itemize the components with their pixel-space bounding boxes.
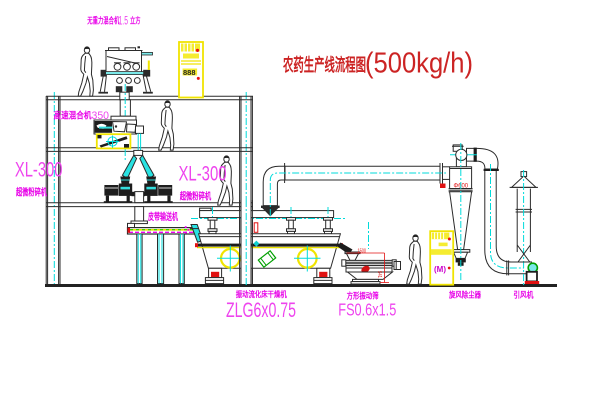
svg-text:(500kg/h): (500kg/h)	[365, 48, 473, 80]
svg-text:立方: 立方	[130, 16, 141, 26]
svg-text:(M): (M)	[434, 265, 446, 274]
svg-text:XL-300: XL-300	[179, 163, 227, 186]
svg-text:高速混合机: 高速混合机	[54, 110, 92, 121]
svg-text:引风机: 引风机	[513, 289, 533, 299]
svg-text:FS0.6x1.5: FS0.6x1.5	[338, 299, 396, 319]
svg-text:农药生产线流程图: 农药生产线流程图	[282, 55, 366, 75]
svg-text:旋风除尘器: 旋风除尘器	[448, 289, 482, 299]
svg-text:超微粉碎机: 超微粉碎机	[179, 190, 211, 202]
svg-text:541: 541	[376, 271, 382, 278]
svg-text:888: 888	[183, 68, 196, 77]
svg-text:1500: 1500	[358, 249, 367, 255]
svg-text:无重力混合机: 无重力混合机	[87, 16, 120, 26]
svg-text:皮带输送机: 皮带输送机	[147, 211, 178, 223]
svg-text:ZLG6x0.75: ZLG6x0.75	[226, 298, 296, 322]
svg-text:1.5: 1.5	[119, 14, 129, 28]
svg-text:XL-300: XL-300	[15, 159, 63, 182]
svg-text:超微粉碎机: 超微粉碎机	[15, 187, 47, 199]
